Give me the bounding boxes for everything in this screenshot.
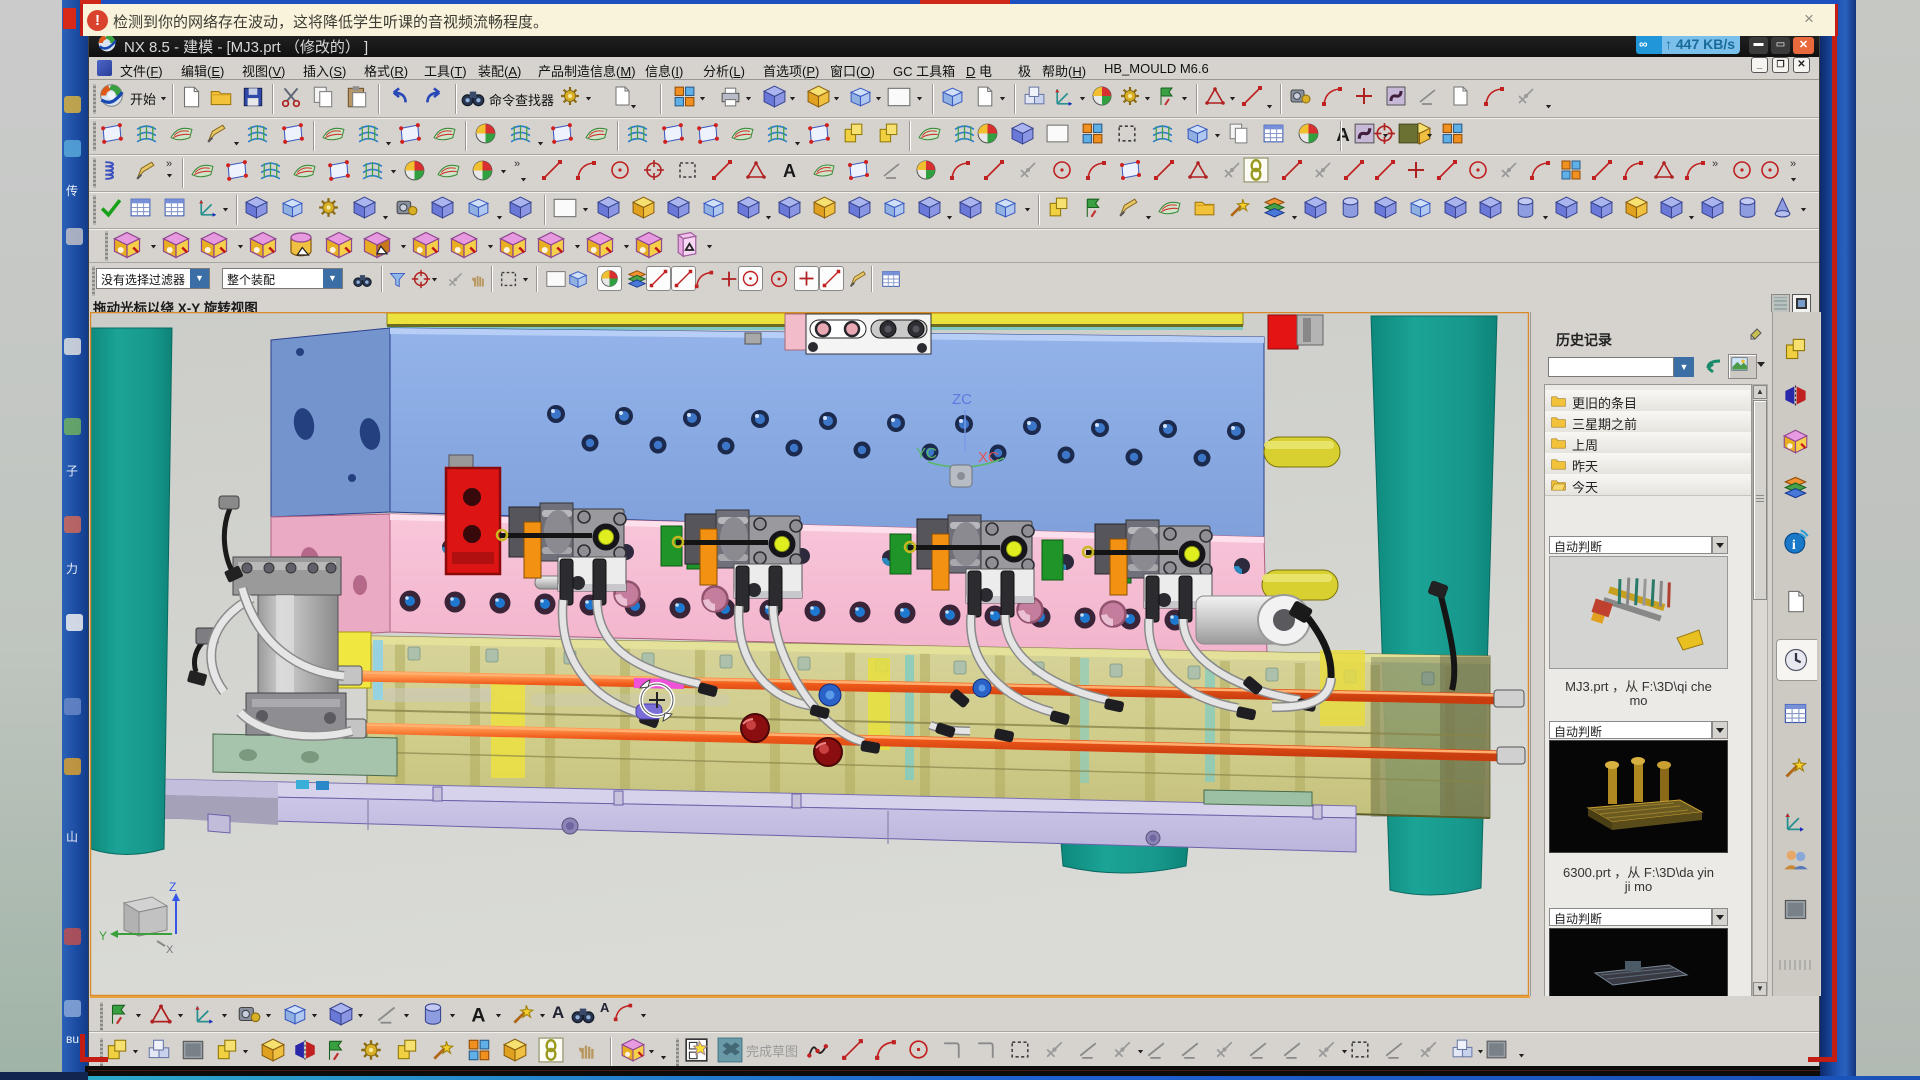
svg-text:A: A xyxy=(783,161,796,181)
svg-text:A: A xyxy=(1336,124,1350,145)
svg-text:YC: YC xyxy=(916,445,937,462)
svg-text:Y: Y xyxy=(99,929,107,943)
svg-text:Z: Z xyxy=(169,880,176,894)
svg-text:ZC: ZC xyxy=(952,391,972,408)
svg-text:X: X xyxy=(166,944,174,956)
svg-text:i: i xyxy=(1792,538,1796,553)
svg-text:A: A xyxy=(471,1005,485,1027)
